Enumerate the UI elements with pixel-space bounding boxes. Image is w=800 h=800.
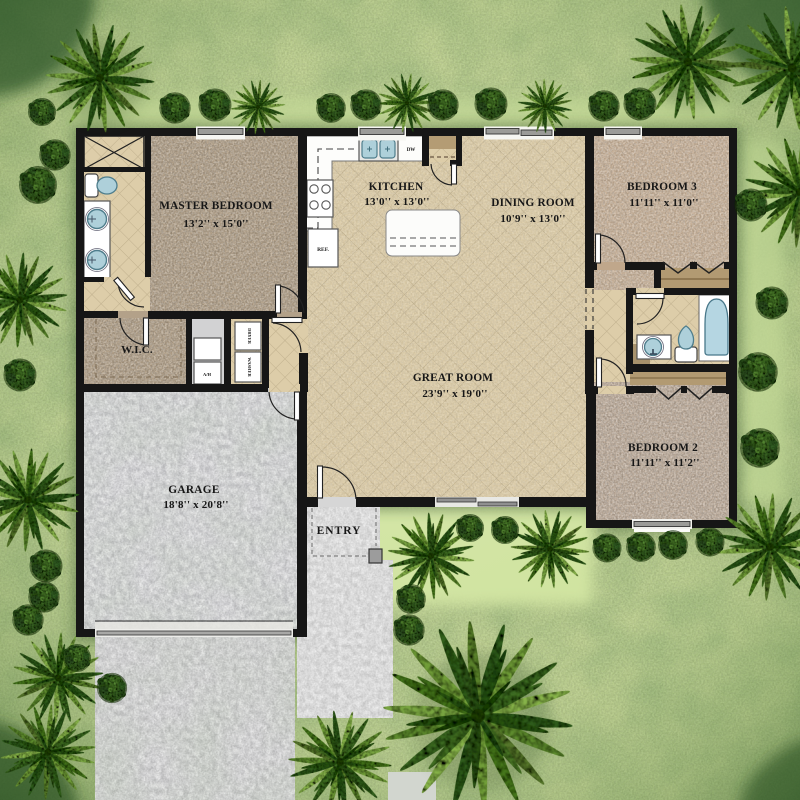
svg-text:KITCHEN: KITCHEN (369, 181, 424, 193)
svg-text:REF.: REF. (317, 247, 329, 253)
svg-text:18'8'' x 20'8'': 18'8'' x 20'8'' (163, 499, 228, 511)
svg-text:DW: DW (407, 148, 416, 153)
svg-text:10'9'' x 13'0'': 10'9'' x 13'0'' (500, 213, 565, 225)
svg-text:GREAT ROOM: GREAT ROOM (413, 372, 493, 384)
svg-text:WASHER: WASHER (247, 357, 252, 377)
svg-text:W.I.C.: W.I.C. (121, 344, 153, 356)
svg-text:11'11'' x 11'0'': 11'11'' x 11'0'' (629, 197, 698, 209)
svg-text:BEDROOM 3: BEDROOM 3 (627, 181, 697, 193)
svg-text:13'0'' x 13'0'': 13'0'' x 13'0'' (364, 196, 429, 208)
svg-text:BEDROOM 2: BEDROOM 2 (628, 442, 698, 454)
svg-text:DINING ROOM: DINING ROOM (491, 197, 575, 209)
svg-text:DRYER: DRYER (247, 328, 252, 345)
svg-text:13'2'' x 15'0'': 13'2'' x 15'0'' (183, 218, 248, 230)
svg-text:GARAGE: GARAGE (168, 484, 219, 496)
svg-text:MASTER BEDROOM: MASTER BEDROOM (159, 200, 273, 212)
svg-text:23'9'' x 19'0'': 23'9'' x 19'0'' (422, 388, 487, 400)
svg-text:A/H: A/H (203, 372, 212, 377)
svg-text:ENTRY: ENTRY (317, 525, 362, 537)
svg-text:11'11'' x 11'2'': 11'11'' x 11'2'' (630, 457, 699, 469)
